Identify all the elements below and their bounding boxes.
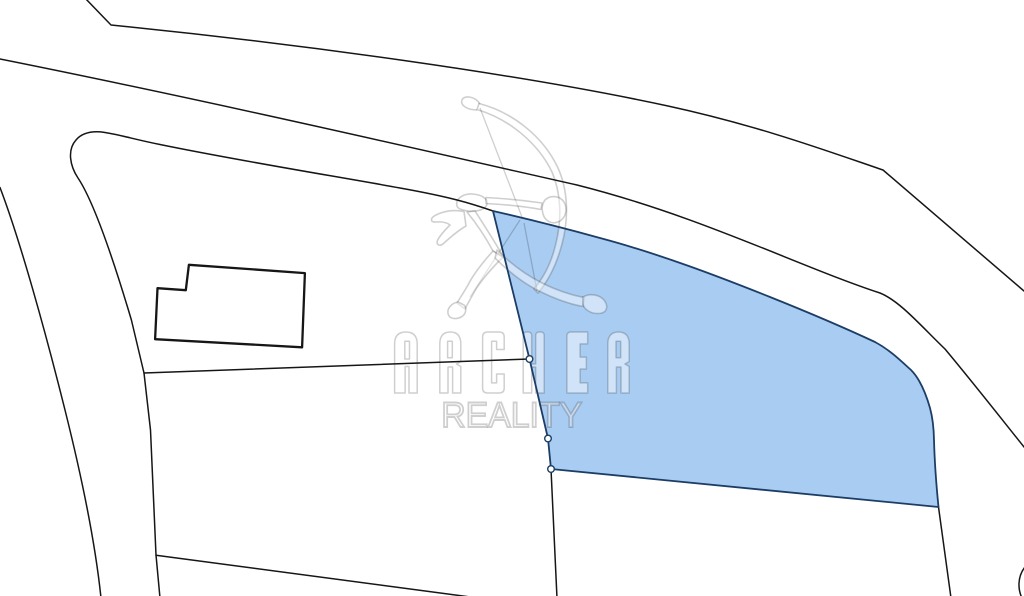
svg-text:REALITY: REALITY [441, 395, 582, 435]
